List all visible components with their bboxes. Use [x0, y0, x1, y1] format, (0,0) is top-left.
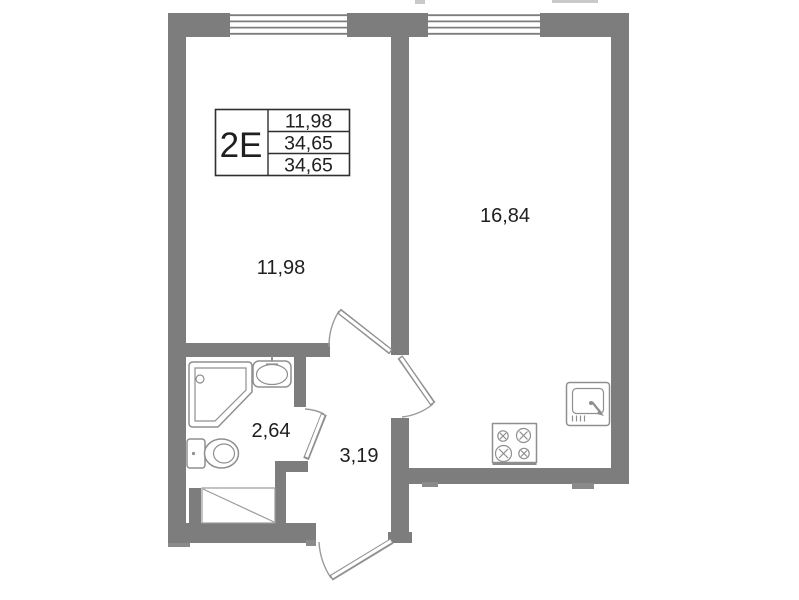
- top-edge-artifact: [415, 0, 425, 4]
- room-door: [329, 311, 391, 352]
- left-outer-wall: [168, 13, 186, 543]
- window-kitchen-living: [427, 15, 541, 34]
- bottom-wall-right: [391, 468, 629, 484]
- hall-area-label: 3,19: [340, 445, 379, 467]
- flush-button: [192, 452, 195, 455]
- door-swing-arc: [329, 311, 339, 347]
- door-leaf: [307, 415, 324, 457]
- door-leaf: [340, 312, 390, 351]
- floor-plan-page: 2Е 11,98 34,65 34,65 11,98 16,84 2,64 3,…: [0, 0, 799, 600]
- shower-icon: [189, 362, 252, 427]
- door-leaf: [332, 541, 391, 577]
- hall-left-wall: [275, 461, 286, 523]
- top-edge-artifact: [552, 0, 598, 3]
- kitchen-living-area-label: 16,84: [480, 205, 530, 227]
- duct-stub-wall: [189, 488, 201, 523]
- kitchen-sink-icon: [567, 383, 610, 426]
- stove-icon: [493, 424, 537, 466]
- door-swing-arc: [319, 542, 331, 578]
- bottom-wall-left: [168, 523, 316, 543]
- door-swing-arc: [402, 404, 433, 417]
- toilet-tank: [187, 439, 205, 468]
- living-room-door: [400, 357, 433, 417]
- bathroom-sink-icon: [253, 356, 291, 387]
- wall-tab: [306, 540, 316, 546]
- legend-value-living: 11,98: [285, 111, 332, 133]
- bathroom-top-wall: [168, 343, 330, 357]
- middle-wall-upper: [391, 13, 409, 355]
- right-outer-wall: [611, 13, 629, 483]
- wall-tab: [168, 543, 190, 547]
- legend-value-total2: 34,65: [284, 155, 333, 177]
- entrance-door: [319, 541, 392, 578]
- stove-body: [493, 424, 537, 463]
- legend-value-total: 34,65: [284, 133, 333, 155]
- duct-shaft: [202, 488, 275, 523]
- walls: [168, 13, 629, 547]
- bathroom-right-wall: [294, 357, 306, 407]
- floor-plan-drawing: 2Е 11,98 34,65 34,65 11,98 16,84 2,64 3,…: [0, 0, 799, 600]
- top-wall-mid-pier: [347, 13, 428, 37]
- window-left-room: [229, 15, 347, 34]
- wall-tab: [422, 482, 438, 487]
- wall-tab: [572, 483, 594, 489]
- door-leaf: [401, 358, 432, 403]
- room-area-label: 11,98: [257, 257, 306, 279]
- apartment-type-code: 2Е: [220, 126, 263, 165]
- toilet-bowl: [205, 439, 239, 468]
- apartment-legend-table: 2Е 11,98 34,65 34,65: [216, 110, 350, 177]
- toilet-icon: [187, 439, 239, 468]
- bathroom-door: [305, 409, 324, 459]
- bathroom-area-label: 2,64: [252, 420, 291, 442]
- shower-tray: [189, 362, 252, 427]
